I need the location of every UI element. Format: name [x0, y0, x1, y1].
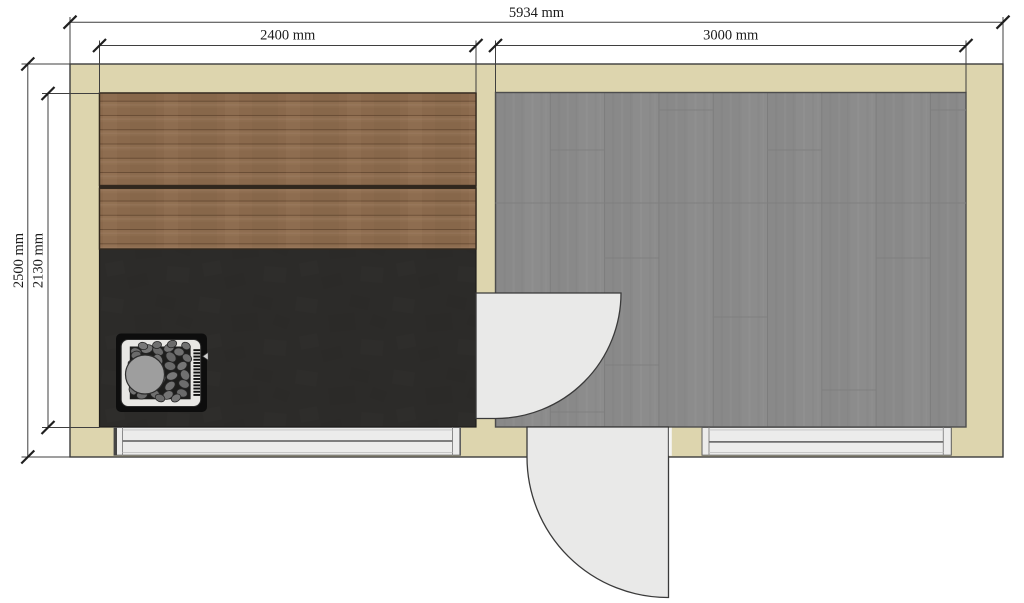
svg-text:2500 mm: 2500 mm	[11, 232, 27, 288]
svg-text:2130 mm: 2130 mm	[31, 232, 47, 288]
svg-text:2400 mm: 2400 mm	[260, 28, 316, 44]
svg-text:5934 mm: 5934 mm	[509, 5, 565, 21]
svg-text:3000 mm: 3000 mm	[703, 28, 759, 44]
